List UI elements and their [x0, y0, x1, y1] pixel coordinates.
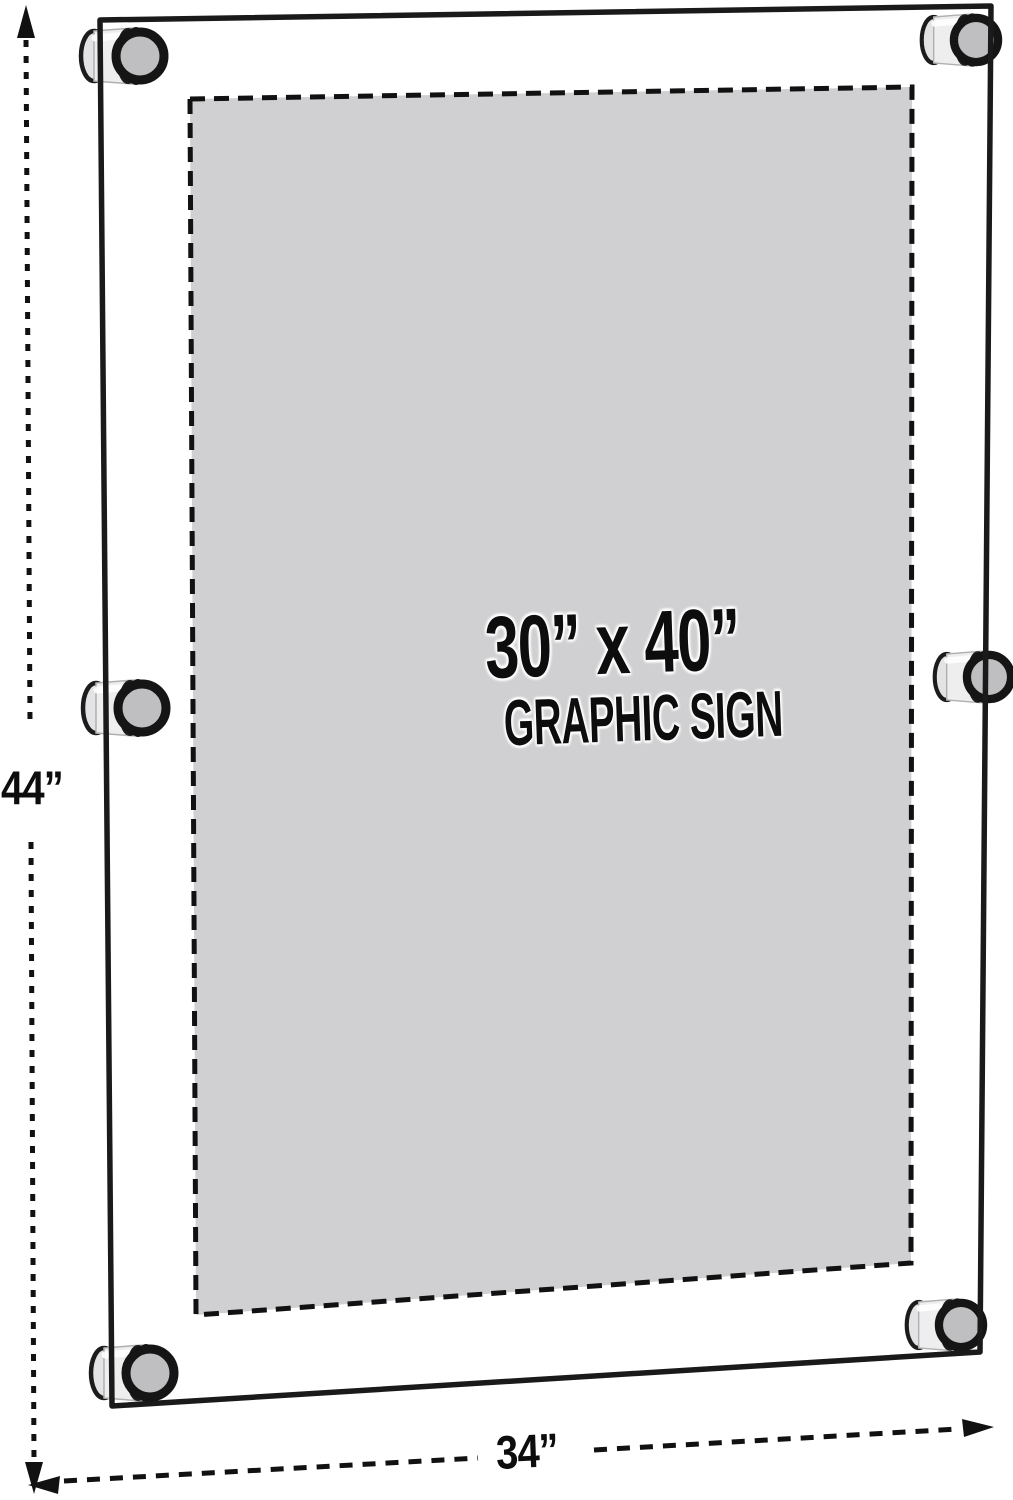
width-dimension-label: 34” [495, 1422, 559, 1480]
height-dimension-line [17, 5, 43, 1494]
product-diagram: 44” 34” 30” x 40” GRAPHIC SIGN [0, 0, 1013, 1500]
up-arrowhead-icon [17, 5, 35, 38]
standoff-cap-bottom-left [126, 1349, 174, 1397]
standoff-cap-bottom-right [939, 1303, 983, 1347]
sign-size-text: 30” x 40” [483, 594, 714, 694]
down-arrowhead-icon [25, 1462, 43, 1494]
standoff-cap-mid-left [118, 684, 166, 732]
standoff-cap-mid-right [967, 655, 1011, 699]
sign-type-text: GRAPHIC SIGN [503, 687, 701, 754]
standoff-cap-top-left [116, 32, 164, 80]
graphic-sign-label: 30” x 40” GRAPHIC SIGN [434, 592, 765, 755]
height-dimension-label: 44” [1, 760, 63, 815]
right-arrowhead-icon [962, 1419, 994, 1437]
